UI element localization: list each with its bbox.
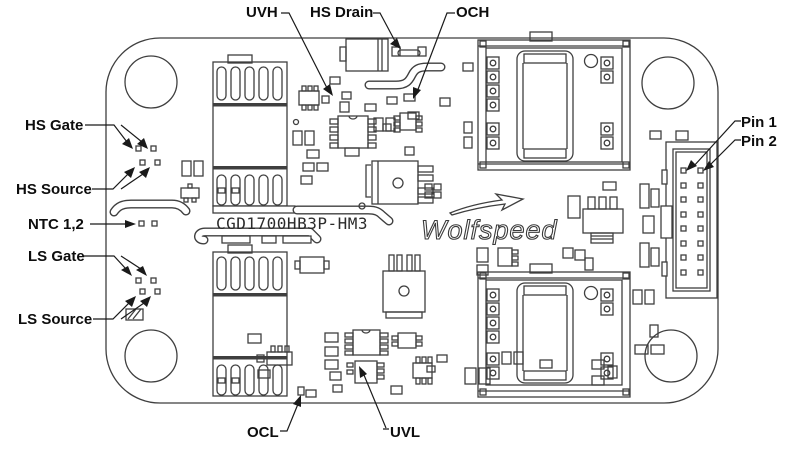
module-pads bbox=[487, 289, 613, 379]
connector-pin bbox=[681, 212, 686, 217]
isolation-slot-mid-lower bbox=[198, 232, 317, 243]
smd-pad bbox=[330, 372, 341, 380]
connector-pins bbox=[681, 168, 703, 275]
smd-pad bbox=[365, 104, 376, 111]
callout-ls-source: LS Source bbox=[18, 296, 151, 328]
callout-hs-source: HS Source bbox=[16, 167, 150, 198]
callout-pin1-label: Pin 1 bbox=[741, 114, 777, 131]
callout-hs-drain-label: HS Drain bbox=[310, 4, 373, 21]
callout-ocl-label: OCL bbox=[247, 424, 279, 441]
callout-ntc-label: NTC 1,2 bbox=[28, 216, 84, 233]
ocl-pad bbox=[298, 387, 304, 395]
smd-pad bbox=[540, 360, 552, 368]
pcb-diagram-svg: CGD1700HB3P-HM3 Wolfspeed UVH HS Drain O… bbox=[0, 0, 800, 449]
smd-pad bbox=[592, 376, 604, 385]
smd-pad bbox=[387, 97, 397, 104]
smd-pad bbox=[479, 368, 490, 384]
connector-pin bbox=[698, 270, 703, 275]
sot-package bbox=[392, 333, 422, 348]
arrowhead bbox=[293, 395, 301, 407]
connector-pin bbox=[681, 183, 686, 188]
connector-pin bbox=[681, 241, 686, 246]
via bbox=[294, 120, 299, 125]
smd-pad bbox=[194, 161, 203, 176]
smd-pad bbox=[651, 189, 659, 207]
connector-pin bbox=[698, 183, 703, 188]
smd-pad bbox=[643, 216, 654, 233]
mounting-hole bbox=[642, 57, 694, 109]
smd-pad bbox=[603, 182, 616, 190]
isolation-slot-ntc bbox=[114, 204, 186, 212]
callout-pin2: Pin 2 bbox=[703, 133, 777, 171]
smd-pad bbox=[575, 250, 585, 260]
smd-pad bbox=[248, 334, 261, 343]
smd-pad bbox=[301, 176, 312, 184]
smd-pad bbox=[405, 147, 414, 155]
smd-pad bbox=[464, 137, 472, 148]
hs-gate-pad bbox=[136, 146, 141, 151]
connector-pin bbox=[698, 255, 703, 260]
smd-pad bbox=[514, 352, 523, 364]
smd-pad bbox=[340, 102, 349, 112]
arrowhead bbox=[125, 220, 136, 228]
uvh-pad bbox=[342, 92, 351, 99]
hs-source-pad bbox=[140, 160, 145, 165]
mounting-hole bbox=[125, 56, 177, 108]
winding-slots bbox=[217, 67, 282, 205]
hs-source-pad bbox=[155, 160, 160, 165]
smd-pad bbox=[182, 161, 191, 176]
hs-drain-pad bbox=[392, 47, 426, 56]
smd-pad bbox=[463, 63, 473, 71]
hs-gate-pad bbox=[151, 146, 156, 151]
smd-pad bbox=[650, 325, 658, 337]
callout-ntc: NTC 1,2 bbox=[28, 216, 136, 233]
part-number-text: CGD1700HB3P-HM3 bbox=[216, 214, 368, 233]
smd-pad bbox=[585, 258, 593, 270]
smd-pad bbox=[640, 184, 649, 208]
smd-pad bbox=[325, 360, 338, 369]
connector-pin bbox=[698, 212, 703, 217]
callout-och-label: OCH bbox=[456, 4, 489, 21]
smd-pad bbox=[676, 131, 688, 140]
smd-pad bbox=[477, 248, 488, 262]
smd-pad bbox=[434, 192, 441, 198]
callout-ocl: OCL bbox=[247, 395, 301, 441]
wolfspeed-logo: Wolfspeed bbox=[421, 194, 558, 245]
pcb-diagram: CGD1700HB3P-HM3 Wolfspeed UVH HS Drain O… bbox=[0, 0, 800, 449]
smd-pad bbox=[640, 243, 649, 267]
wolfspeed-bolt-icon bbox=[450, 194, 523, 215]
callout-hs-gate: HS Gate bbox=[25, 117, 148, 149]
sot-package bbox=[181, 184, 199, 202]
callout-hs-source-label: HS Source bbox=[16, 181, 92, 198]
ls-gate-pad bbox=[151, 278, 156, 283]
arrowhead bbox=[323, 84, 333, 96]
arrowhead bbox=[686, 160, 697, 171]
connector-pin bbox=[681, 255, 686, 260]
smd-pad bbox=[293, 131, 302, 145]
module-pads bbox=[487, 57, 613, 149]
smd-pad bbox=[391, 386, 402, 394]
module-vent-hole bbox=[585, 287, 598, 300]
smd-pad bbox=[307, 150, 319, 158]
sot-package bbox=[498, 248, 518, 266]
connector-pin bbox=[681, 270, 686, 275]
arrowhead bbox=[413, 87, 421, 99]
smd-pad bbox=[317, 163, 328, 171]
smd-pad bbox=[440, 98, 450, 106]
arrowhead bbox=[122, 138, 133, 149]
smd-pad bbox=[330, 77, 340, 84]
voltage-regulator bbox=[583, 197, 623, 243]
smd-pad bbox=[333, 385, 342, 392]
power-module-hs bbox=[478, 32, 630, 170]
ls-source-hatched-pad bbox=[126, 309, 143, 320]
mounting-hole bbox=[645, 330, 697, 382]
callout-uvl-label: UVL bbox=[390, 424, 420, 441]
callout-ls-gate-label: LS Gate bbox=[28, 248, 85, 265]
smd-pad bbox=[645, 290, 654, 304]
smd-pad bbox=[464, 122, 472, 133]
smd-pad bbox=[303, 163, 314, 171]
smd-pad bbox=[325, 333, 338, 342]
smd-pad bbox=[325, 347, 338, 356]
connector-pin-1 bbox=[681, 168, 686, 173]
winding-slots bbox=[217, 257, 282, 395]
connector-pin bbox=[681, 226, 686, 231]
isolation-slot-top bbox=[369, 67, 441, 85]
module-core bbox=[517, 51, 573, 161]
arrowhead bbox=[121, 266, 132, 276]
smd-pad bbox=[427, 366, 435, 372]
smd-pad bbox=[502, 352, 511, 364]
ntc-pad bbox=[152, 221, 157, 226]
arrowhead bbox=[359, 366, 367, 378]
connector-pin bbox=[698, 197, 703, 202]
mounting-hole bbox=[125, 330, 177, 382]
wolfspeed-logo-text: Wolfspeed bbox=[421, 215, 558, 245]
smd-pad bbox=[563, 248, 573, 258]
smd-pad bbox=[465, 368, 476, 384]
sot-package bbox=[413, 357, 432, 384]
ntc-pad bbox=[139, 221, 144, 226]
smd-pad bbox=[306, 390, 316, 397]
connector-pin bbox=[681, 197, 686, 202]
smd-pad bbox=[437, 355, 447, 362]
power-device-ls bbox=[383, 255, 425, 318]
smd-pad bbox=[633, 290, 642, 304]
connector-pin bbox=[698, 241, 703, 246]
connector-pin bbox=[698, 226, 703, 231]
connector-pin-2 bbox=[698, 168, 703, 173]
module-vent-hole bbox=[585, 55, 598, 68]
power-device-hs bbox=[366, 161, 433, 204]
gate-driver-ic-ls bbox=[345, 330, 388, 355]
smd-pad bbox=[434, 184, 441, 190]
arrowhead bbox=[139, 167, 150, 178]
gate-driver-ic-hs bbox=[330, 116, 376, 148]
smd-pad bbox=[651, 345, 664, 354]
callout-ls-source-label: LS Source bbox=[18, 311, 92, 328]
smd-pad bbox=[305, 131, 314, 145]
smd-pad bbox=[568, 196, 580, 218]
smd-pad bbox=[651, 248, 659, 266]
callout-hs-gate-label: HS Gate bbox=[25, 117, 83, 134]
power-module-ls bbox=[478, 264, 630, 397]
capacitor-with-tabs bbox=[295, 257, 329, 273]
ls-source-pad bbox=[140, 289, 145, 294]
transformer-ls bbox=[213, 245, 287, 396]
smd-pad bbox=[345, 148, 359, 156]
ls-source-pad bbox=[155, 289, 160, 294]
callout-pin2-label: Pin 2 bbox=[741, 133, 777, 150]
transformer-hs bbox=[213, 55, 295, 213]
ls-gate-pad bbox=[136, 278, 141, 283]
smd-pad bbox=[425, 184, 432, 190]
hs-drain-capacitor bbox=[340, 39, 388, 71]
callout-ls-gate: LS Gate bbox=[28, 248, 147, 276]
smd-pad bbox=[383, 124, 391, 131]
smd-pad bbox=[650, 131, 661, 139]
callout-uvh-label: UVH bbox=[246, 4, 278, 21]
